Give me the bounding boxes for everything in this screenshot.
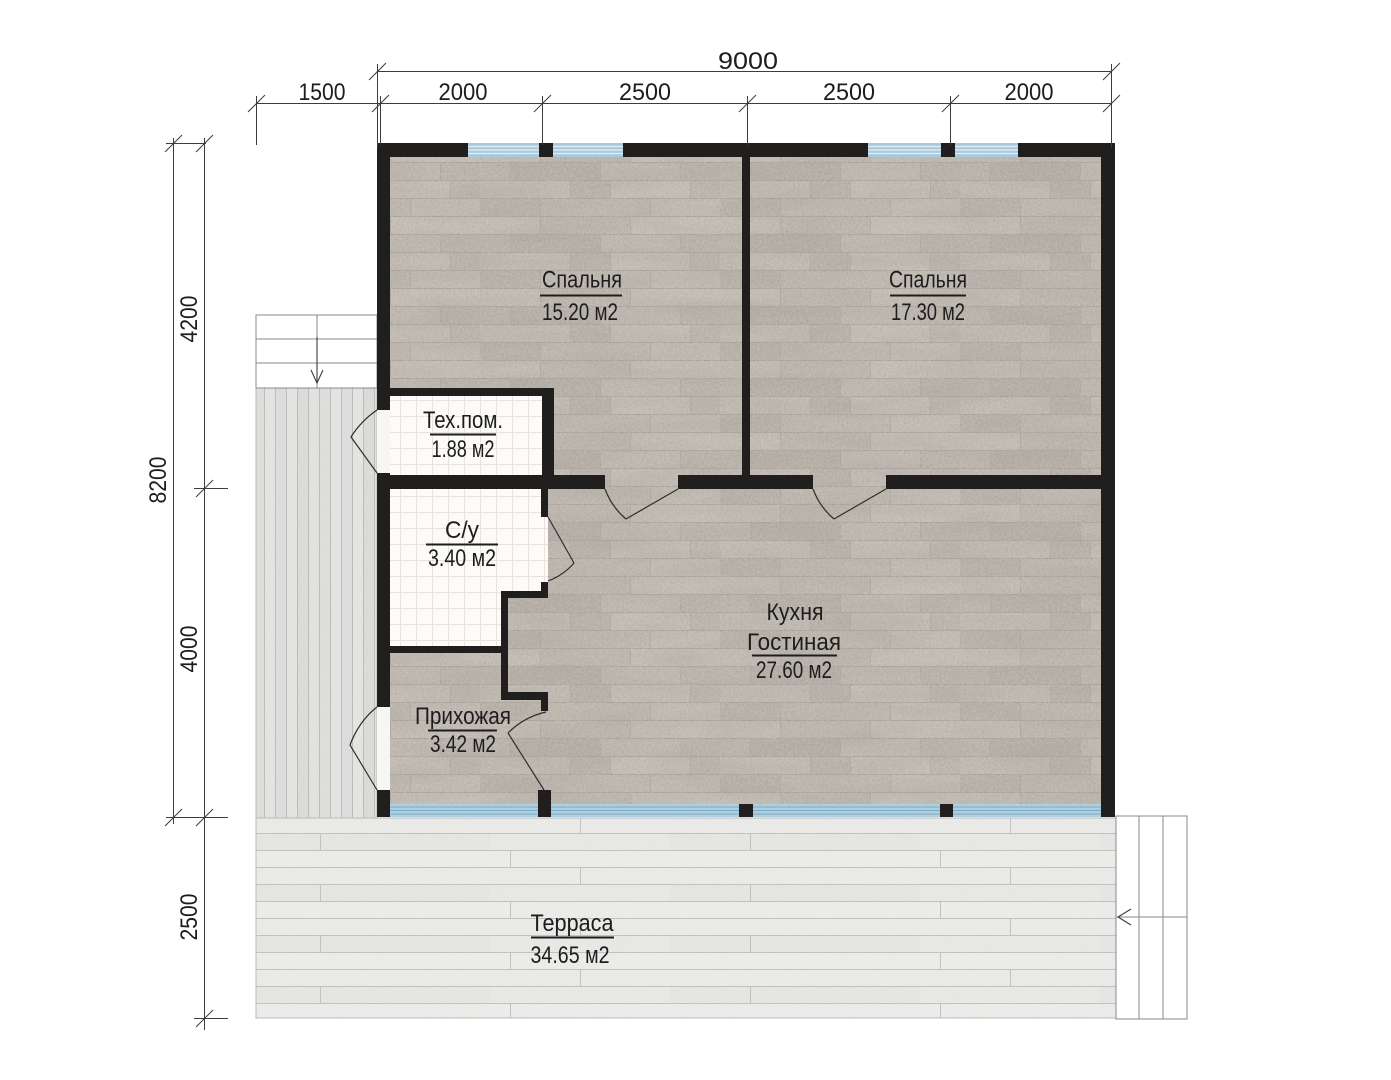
svg-text:27.60 м2: 27.60 м2: [756, 657, 832, 684]
svg-text:1.88 м2: 1.88 м2: [432, 436, 495, 463]
svg-text:Кухня: Кухня: [767, 599, 824, 626]
svg-text:Терраса: Терраса: [531, 910, 615, 937]
svg-text:Тех.пом.: Тех.пом.: [423, 407, 503, 434]
svg-text:Спальня: Спальня: [542, 267, 622, 294]
svg-text:4000: 4000: [176, 626, 203, 673]
svg-text:Прихожая: Прихожая: [415, 703, 511, 730]
svg-text:2000: 2000: [1005, 79, 1054, 106]
svg-text:4200: 4200: [176, 296, 203, 343]
svg-text:2500: 2500: [823, 79, 875, 106]
svg-text:3.42 м2: 3.42 м2: [430, 731, 496, 758]
svg-text:34.65 м2: 34.65 м2: [531, 942, 610, 969]
svg-text:3.40 м2: 3.40 м2: [428, 545, 496, 572]
svg-text:1500: 1500: [299, 79, 346, 106]
svg-text:2500: 2500: [176, 894, 203, 941]
svg-text:С/у: С/у: [445, 517, 479, 544]
svg-text:9000: 9000: [718, 48, 778, 75]
svg-text:2000: 2000: [439, 79, 488, 106]
svg-text:15.20 м2: 15.20 м2: [542, 299, 618, 326]
svg-text:2500: 2500: [619, 79, 671, 106]
svg-text:Спальня: Спальня: [889, 267, 967, 294]
svg-text:8200: 8200: [145, 457, 172, 504]
svg-text:Гостиная: Гостиная: [747, 629, 841, 656]
svg-text:17.30 м2: 17.30 м2: [891, 299, 965, 326]
